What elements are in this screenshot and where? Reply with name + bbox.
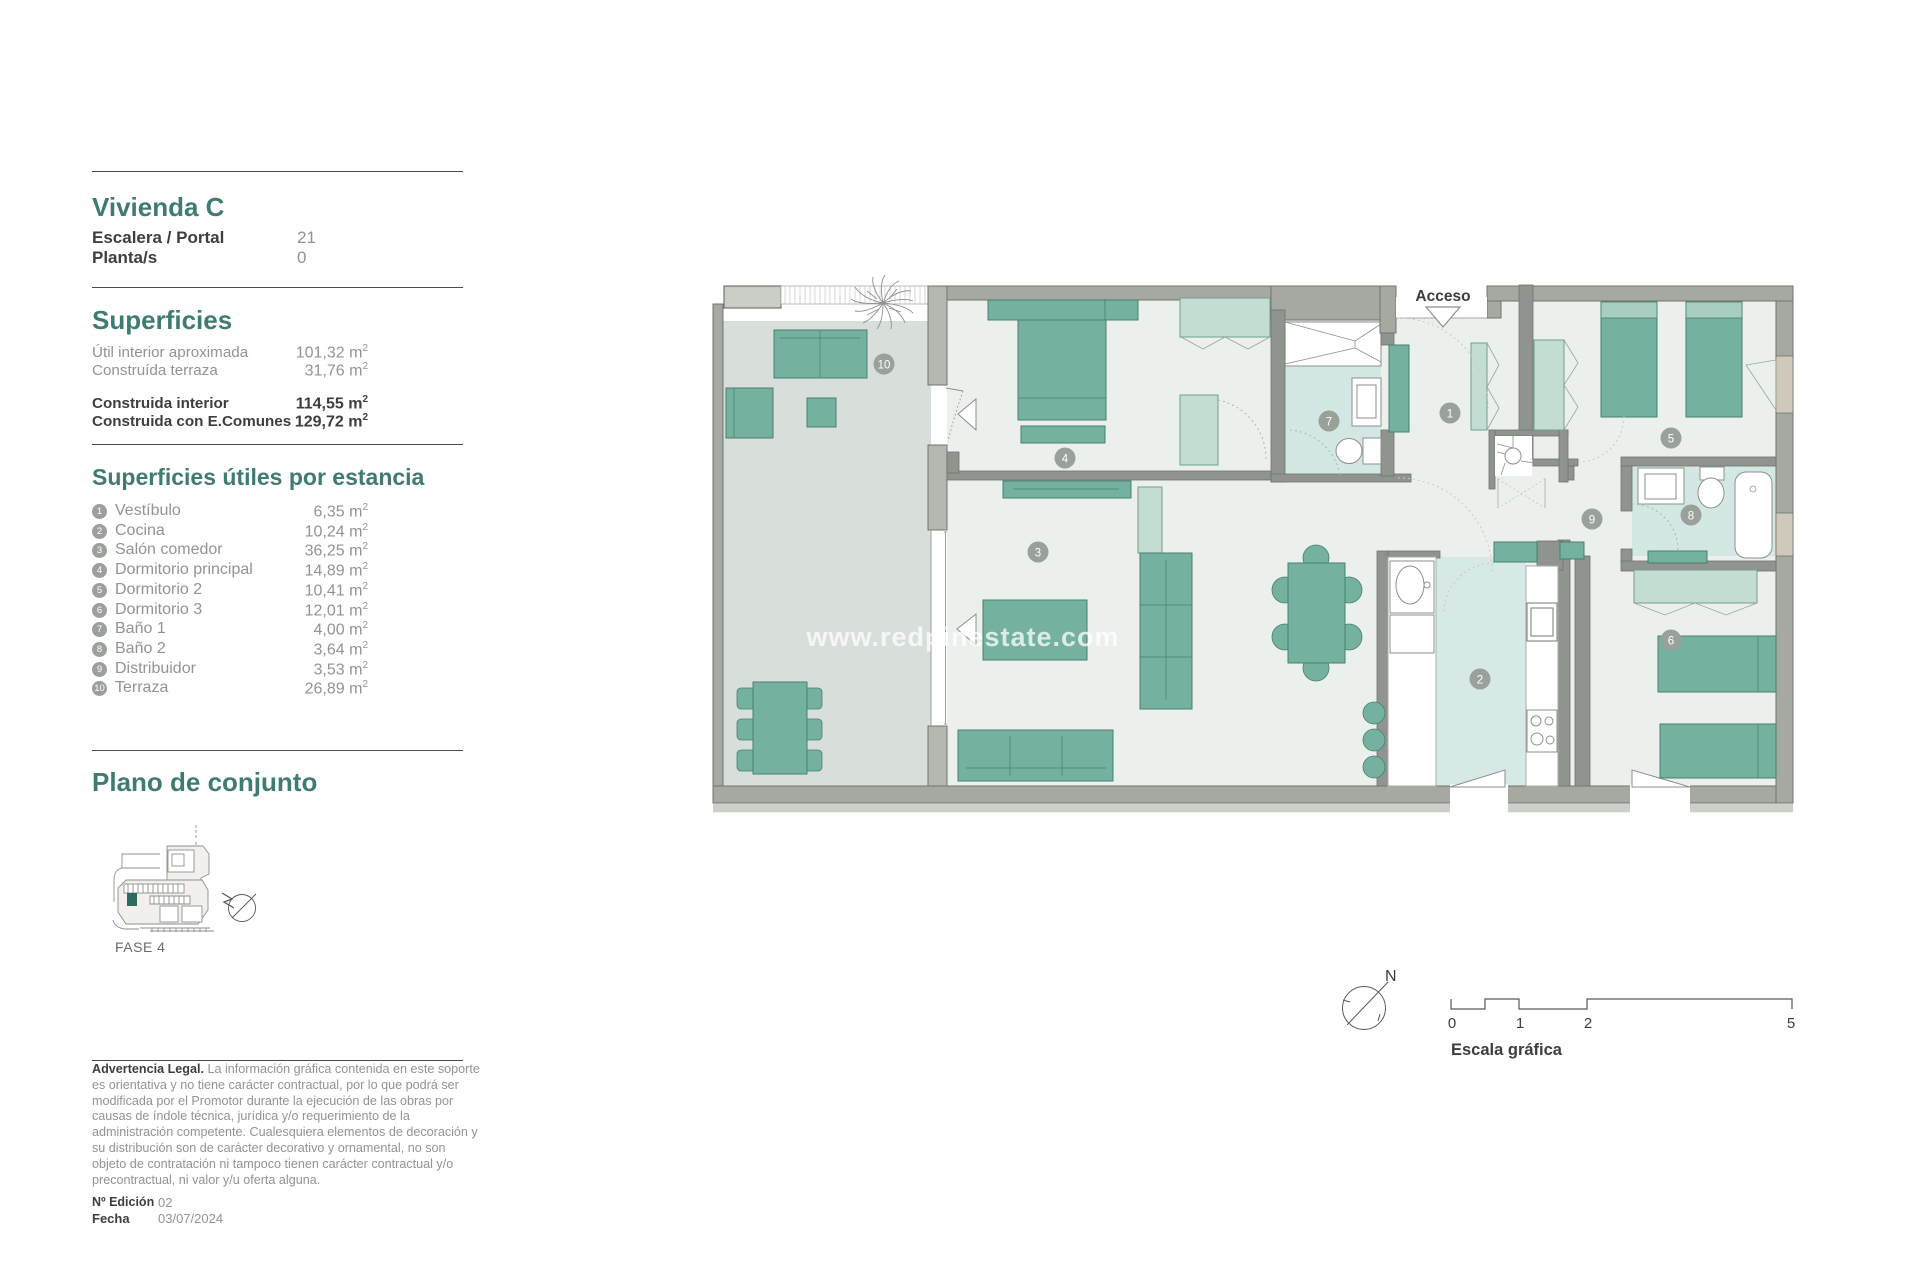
svg-text:www.redpinestate.com: www.redpinestate.com [805, 622, 1119, 652]
svg-text:2: 2 [1477, 675, 1483, 687]
svg-text:8: 8 [1688, 511, 1694, 523]
svg-text:0: 0 [1448, 1015, 1456, 1032]
svg-text:2: 2 [1584, 1015, 1592, 1032]
svg-text:3: 3 [1035, 548, 1041, 560]
svg-text:Acceso: Acceso [1415, 288, 1470, 305]
svg-text:6: 6 [1668, 636, 1674, 648]
svg-text:9: 9 [1589, 515, 1595, 527]
svg-text:5: 5 [1787, 1015, 1795, 1032]
svg-text:1: 1 [1516, 1015, 1524, 1032]
svg-text:5: 5 [1668, 434, 1674, 446]
svg-text:Escala gráfica: Escala gráfica [1451, 1041, 1563, 1059]
svg-text:4: 4 [1062, 454, 1069, 466]
svg-text:N: N [1385, 968, 1397, 985]
svg-text:7: 7 [1326, 417, 1332, 429]
svg-text:1: 1 [1447, 409, 1453, 421]
svg-text:10: 10 [878, 360, 891, 372]
